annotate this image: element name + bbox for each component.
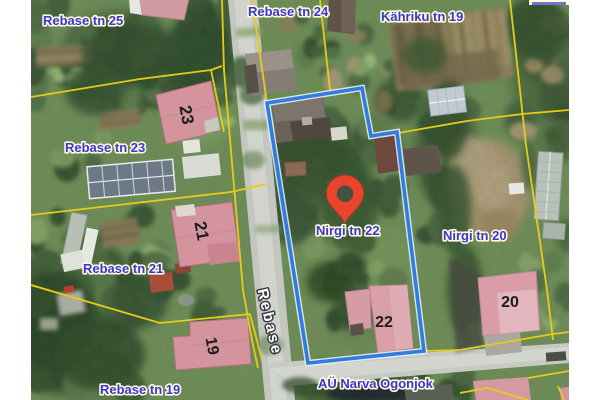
svg-text:Rebase tn 21: Rebase tn 21 bbox=[83, 261, 163, 276]
svg-text:21: 21 bbox=[190, 220, 212, 242]
svg-text:19: 19 bbox=[202, 336, 222, 357]
svg-text:AÜ Narva Ogonjok: AÜ Narva Ogonjok bbox=[318, 376, 434, 391]
svg-text:Nirgi tn 20: Nirgi tn 20 bbox=[443, 228, 507, 243]
svg-text:23: 23 bbox=[175, 104, 197, 126]
svg-text:Nirgi tn 22: Nirgi tn 22 bbox=[316, 223, 380, 238]
svg-text:Rebase tn 19: Rebase tn 19 bbox=[100, 382, 180, 397]
svg-text:Kähriku tn 19: Kähriku tn 19 bbox=[381, 9, 463, 24]
svg-text:22: 22 bbox=[375, 314, 393, 331]
svg-text:20: 20 bbox=[501, 294, 519, 311]
svg-text:Rebase tn 24: Rebase tn 24 bbox=[248, 4, 329, 19]
svg-text:Rebase tn 23: Rebase tn 23 bbox=[65, 140, 145, 155]
svg-text:Rebase tn 25: Rebase tn 25 bbox=[43, 13, 123, 28]
